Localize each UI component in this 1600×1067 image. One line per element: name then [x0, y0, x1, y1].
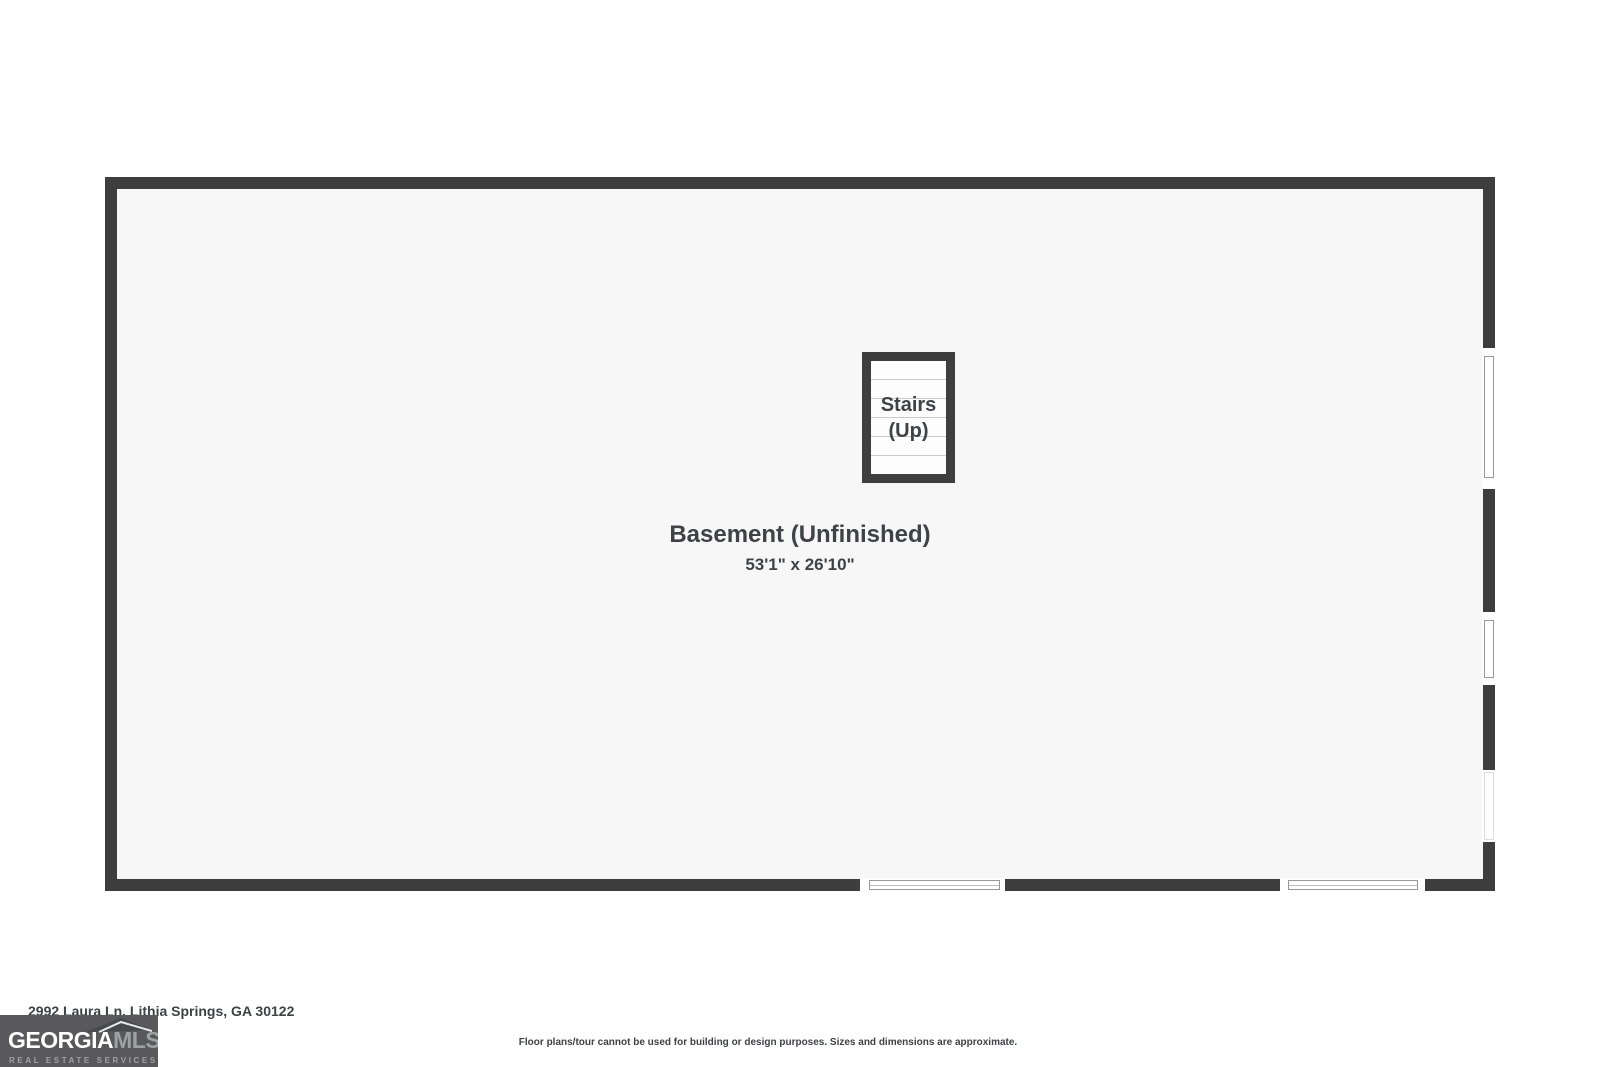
- window-right-middle: [1484, 620, 1494, 678]
- disclaimer-text: Floor plans/tour cannot be used for buil…: [519, 1037, 1017, 1048]
- georgia-mls-logo: GEORGIAMLS REAL ESTATE SERVICES: [0, 1015, 158, 1067]
- window-pane-line: [1289, 885, 1417, 886]
- room-dimensions-label: 53'1" x 26'10": [105, 554, 1495, 576]
- logo-brand-text: GEORGIAMLS: [8, 1028, 158, 1052]
- stairs-label-line2: (Up): [889, 418, 929, 444]
- logo-brand-secondary: MLS: [113, 1027, 158, 1053]
- room-name-label: Basement (Unfinished): [105, 520, 1495, 550]
- window-right-top: [1484, 356, 1494, 478]
- stairs-label-line1: Stairs: [881, 392, 937, 418]
- logo-brand-primary: GEORGIA: [8, 1027, 113, 1053]
- stairs: Stairs (Up): [862, 352, 955, 483]
- window-bottom-left: [869, 880, 1000, 890]
- room-label-group: Basement (Unfinished) 53'1" x 26'10": [105, 520, 1495, 576]
- window-right-bottom: [1484, 772, 1494, 840]
- floorplan-page: Stairs (Up) Basement (Unfinished) 53'1" …: [0, 0, 1600, 1067]
- logo-tagline: REAL ESTATE SERVICES: [9, 1056, 158, 1065]
- window-bottom-right: [1288, 880, 1418, 890]
- window-pane-line: [870, 885, 999, 886]
- stairs-label: Stairs (Up): [871, 361, 946, 474]
